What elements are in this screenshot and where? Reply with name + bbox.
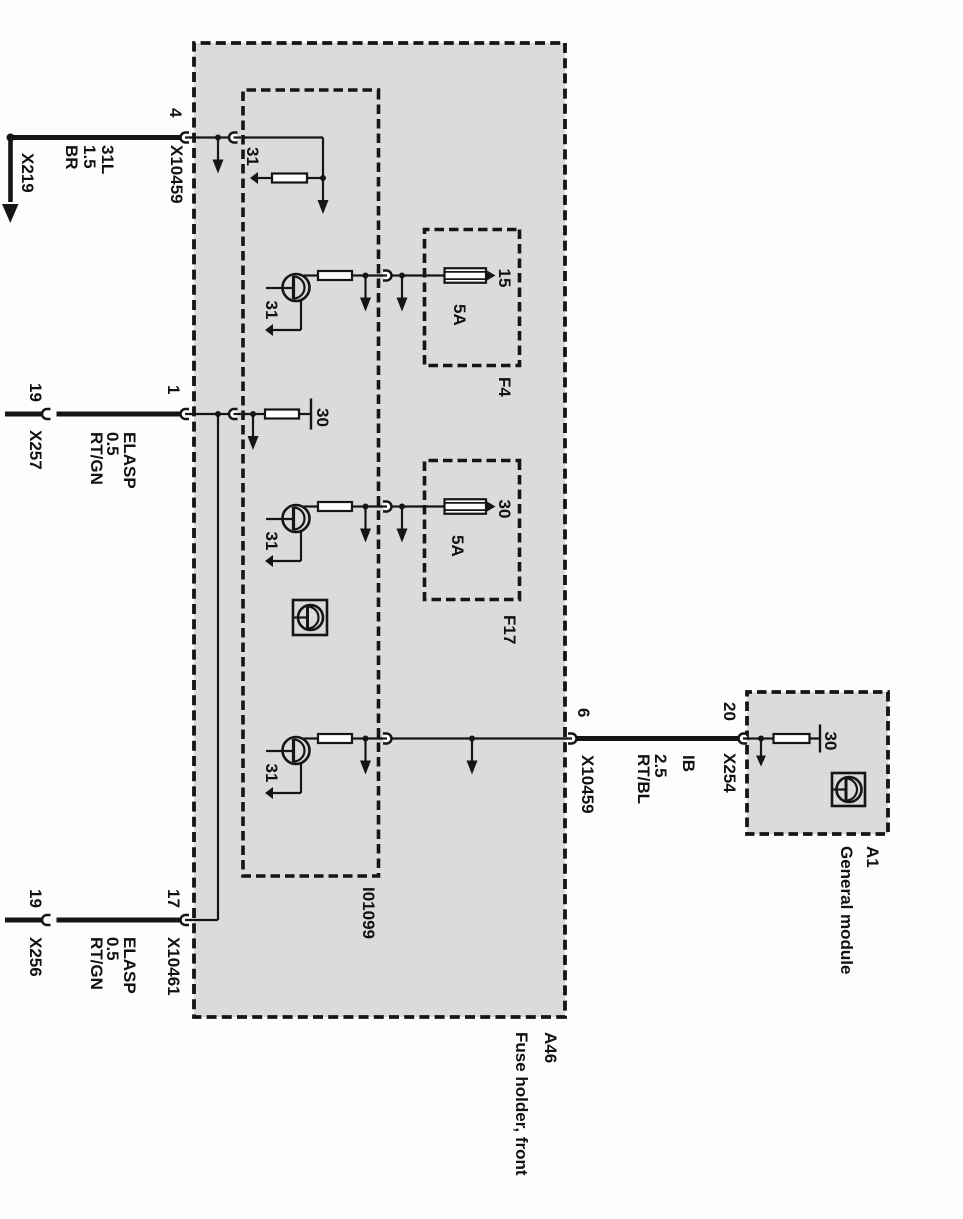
svg-text:X10459: X10459	[167, 145, 186, 204]
svg-text:1.5: 1.5	[80, 145, 99, 169]
svg-text:ELASP: ELASP	[120, 432, 139, 489]
svg-text:F17: F17	[500, 615, 519, 644]
svg-text:5A: 5A	[448, 535, 467, 557]
svg-text:19: 19	[26, 383, 45, 402]
svg-text:A1: A1	[863, 846, 882, 868]
svg-text:X10461: X10461	[164, 937, 183, 996]
svg-text:F4: F4	[495, 377, 514, 397]
svg-text:30: 30	[495, 500, 514, 519]
svg-text:RT/BL: RT/BL	[634, 754, 653, 804]
svg-text:X254: X254	[720, 753, 739, 793]
svg-text:30: 30	[313, 408, 332, 427]
svg-text:General module: General module	[837, 846, 856, 974]
svg-text:X257: X257	[26, 430, 45, 470]
svg-text:30: 30	[821, 732, 840, 751]
svg-text:31: 31	[262, 532, 281, 551]
svg-text:31: 31	[243, 147, 262, 166]
svg-text:RT/GN: RT/GN	[87, 937, 106, 990]
svg-text:4: 4	[166, 108, 185, 118]
svg-text:15: 15	[495, 269, 514, 288]
svg-text:BR: BR	[62, 145, 81, 170]
svg-text:IB: IB	[679, 755, 698, 772]
svg-text:X10459: X10459	[578, 755, 597, 814]
svg-text:5A: 5A	[450, 304, 469, 326]
svg-text:I01099: I01099	[359, 887, 378, 939]
svg-text:31: 31	[262, 301, 281, 320]
svg-text:X256: X256	[26, 937, 45, 977]
svg-text:20: 20	[720, 702, 739, 721]
svg-text:1: 1	[164, 385, 183, 394]
svg-text:A46: A46	[541, 1032, 560, 1063]
svg-text:RT/GN: RT/GN	[87, 432, 106, 485]
svg-text:6: 6	[574, 708, 593, 717]
svg-text:31L: 31L	[98, 145, 117, 174]
svg-text:2.5: 2.5	[651, 754, 670, 778]
svg-text:Fuse holder, front: Fuse holder, front	[512, 1032, 531, 1176]
svg-text:17: 17	[164, 889, 183, 908]
svg-text:19: 19	[26, 889, 45, 908]
svg-text:ELASP: ELASP	[120, 937, 139, 994]
svg-text:31: 31	[262, 764, 281, 783]
svg-text:X219: X219	[18, 153, 37, 193]
